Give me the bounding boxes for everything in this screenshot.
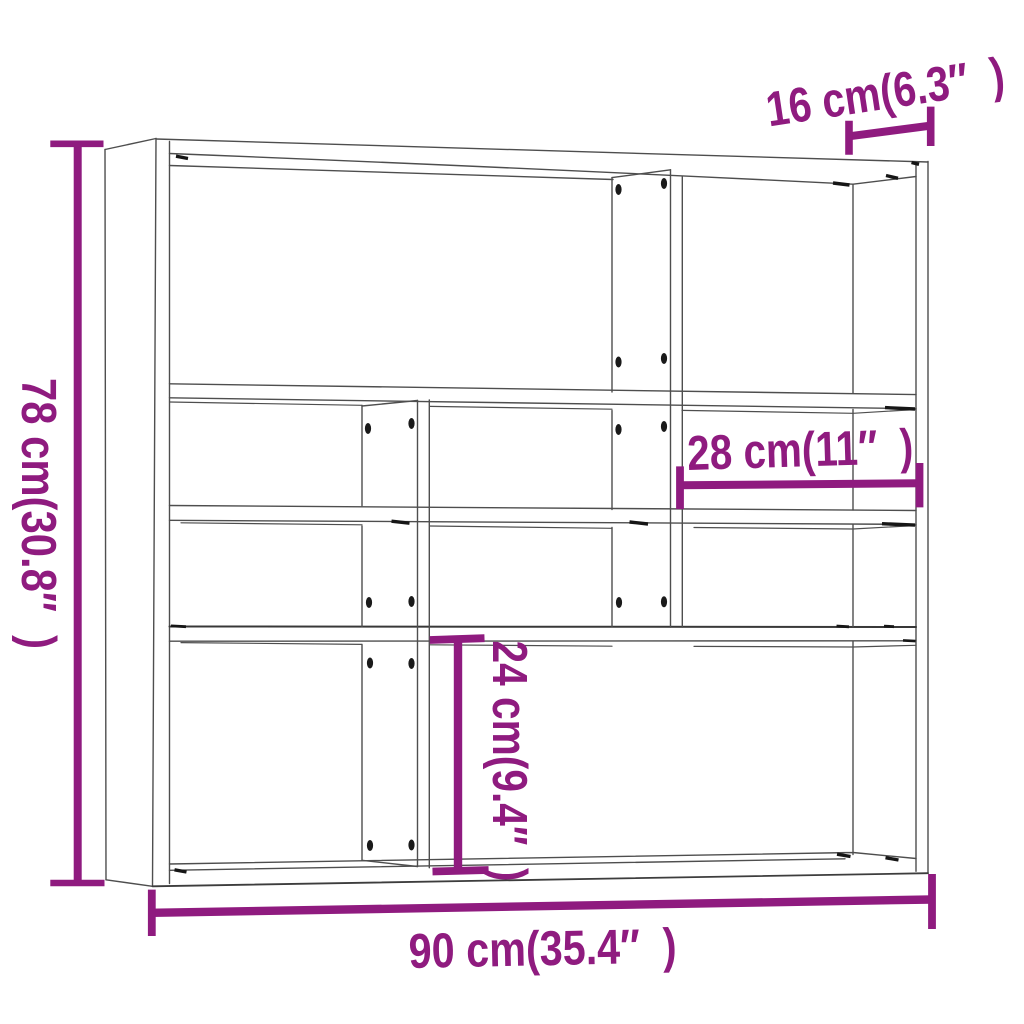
svg-text:24 cm(9.4″ ): 24 cm(9.4″ ) [482, 641, 536, 882]
svg-text:78 cm(30.8″ ): 78 cm(30.8″ ) [11, 378, 65, 649]
svg-text:28 cm(11″ ): 28 cm(11″ ) [686, 420, 914, 481]
svg-text:90 cm(35.4″ ): 90 cm(35.4″ ) [408, 919, 677, 979]
